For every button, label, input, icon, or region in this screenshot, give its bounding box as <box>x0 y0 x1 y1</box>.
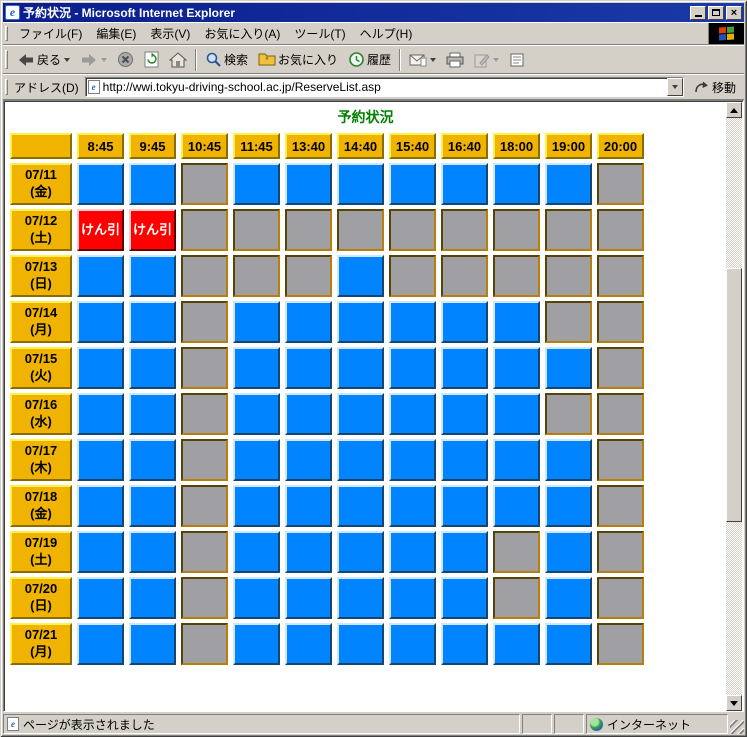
favorites-label: お気に入り <box>278 51 338 68</box>
slot-cell-available[interactable] <box>77 255 124 297</box>
toolbar: 戻る 検索 * お気に入り 履歴 <box>3 45 744 74</box>
table-row: 07/21(月) <box>10 623 644 665</box>
slot-cell-available[interactable] <box>129 577 176 619</box>
slot-cell-available[interactable] <box>77 577 124 619</box>
slot-cell-available[interactable] <box>441 485 488 527</box>
slot-cell-unavailable <box>597 163 644 205</box>
menu-item[interactable]: お気に入り(A) <box>197 23 287 44</box>
slot-cell-available[interactable] <box>233 439 280 481</box>
page-title: 予約状況 <box>5 107 726 127</box>
status-panel-empty <box>522 714 552 734</box>
minimize-icon <box>695 15 702 17</box>
table-row: 07/18(金) <box>10 485 644 527</box>
table-row: 07/13(日) <box>10 255 644 297</box>
slot-cell-available[interactable] <box>389 163 436 205</box>
slot-cell-available[interactable] <box>493 347 540 389</box>
forward-dropdown-icon[interactable] <box>101 58 107 62</box>
slot-cell-available[interactable] <box>337 163 384 205</box>
mail-button[interactable] <box>404 47 441 72</box>
address-label: アドレス(D) <box>12 79 85 96</box>
slot-cell-available[interactable] <box>441 531 488 573</box>
slot-cell-unavailable <box>597 623 644 665</box>
slot-cell-available[interactable] <box>77 393 124 435</box>
resize-grip[interactable] <box>730 720 744 734</box>
home-icon <box>169 52 187 68</box>
chevron-down-icon <box>672 85 678 89</box>
throbber <box>708 23 744 44</box>
refresh-icon <box>144 51 159 68</box>
menu-gripper[interactable] <box>5 26 8 41</box>
forward-arrow-icon <box>80 52 98 68</box>
scroll-down-icon <box>730 701 738 706</box>
slot-cell-available[interactable] <box>233 393 280 435</box>
slot-cell-unavailable <box>181 531 228 573</box>
ie-page-icon: e <box>88 80 100 94</box>
slot-cell-available[interactable] <box>233 301 280 343</box>
slot-cell-unavailable <box>389 255 436 297</box>
slot-cell-unavailable <box>181 439 228 481</box>
history-label: 履歴 <box>367 51 391 68</box>
slot-cell-unavailable <box>493 209 540 251</box>
slot-cell-available[interactable] <box>233 577 280 619</box>
table-corner-cell <box>10 133 72 159</box>
slot-cell-available[interactable] <box>545 439 592 481</box>
address-gripper[interactable] <box>5 79 8 96</box>
slot-cell-available[interactable] <box>129 439 176 481</box>
favorites-button[interactable]: * お気に入り <box>253 47 343 72</box>
slot-cell-available[interactable] <box>129 301 176 343</box>
table-row: 07/11(金) <box>10 163 644 205</box>
slot-cell-available[interactable] <box>441 577 488 619</box>
slot-cell-unavailable <box>545 301 592 343</box>
svg-text:*: * <box>265 55 269 65</box>
ie-logo-icon: e <box>5 5 20 20</box>
time-header-cell: 10:45 <box>181 133 228 159</box>
slot-cell-available[interactable] <box>493 623 540 665</box>
slot-cell-available[interactable] <box>389 485 436 527</box>
slot-cell-available[interactable] <box>129 485 176 527</box>
date-cell: 07/19(土) <box>10 531 72 573</box>
date-cell: 07/16(水) <box>10 393 72 435</box>
menu-item[interactable]: ツール(T) <box>287 23 352 44</box>
slot-cell-available[interactable] <box>545 577 592 619</box>
slot-cell-available[interactable] <box>545 531 592 573</box>
slot-cell-available[interactable] <box>285 347 332 389</box>
slot-cell-available[interactable] <box>337 393 384 435</box>
slot-cell-available[interactable] <box>337 301 384 343</box>
mail-dropdown-icon[interactable] <box>430 58 436 62</box>
scroll-up-button[interactable] <box>726 102 742 118</box>
date-cell: 07/14(月) <box>10 301 72 343</box>
slot-cell-available[interactable] <box>77 347 124 389</box>
date-cell: 07/13(日) <box>10 255 72 297</box>
slot-cell-available[interactable] <box>441 439 488 481</box>
slot-cell-available[interactable] <box>389 531 436 573</box>
slot-cell-available[interactable] <box>233 485 280 527</box>
go-button[interactable]: 移動 <box>688 75 742 99</box>
slot-cell-available[interactable] <box>129 163 176 205</box>
time-header-cell: 15:40 <box>389 133 436 159</box>
maximize-icon <box>712 9 720 16</box>
slot-cell-unavailable <box>181 485 228 527</box>
slot-cell-available[interactable] <box>129 531 176 573</box>
slot-cell-available[interactable] <box>441 347 488 389</box>
slot-cell-available[interactable] <box>77 439 124 481</box>
status-message: ページが表示されました <box>23 716 155 733</box>
slot-cell-available[interactable] <box>493 439 540 481</box>
back-arrow-icon <box>17 52 35 68</box>
minimize-button[interactable] <box>690 6 706 20</box>
slot-cell-towing[interactable]: けん引 <box>129 209 176 251</box>
slot-cell-available[interactable] <box>129 347 176 389</box>
edit-button[interactable] <box>469 47 504 72</box>
slot-cell-available[interactable] <box>389 577 436 619</box>
search-button[interactable]: 検索 <box>200 47 253 72</box>
slot-cell-unavailable <box>597 439 644 481</box>
time-header-cell: 13:40 <box>285 133 332 159</box>
back-button[interactable]: 戻る <box>12 47 75 72</box>
windows-flag-icon <box>719 26 734 40</box>
slot-cell-unavailable <box>389 209 436 251</box>
menu-item[interactable]: ヘルプ(H) <box>353 23 420 44</box>
menu-items-container: ファイル(F)編集(E)表示(V)お気に入り(A)ツール(T)ヘルプ(H) <box>12 23 419 44</box>
slot-cell-available[interactable] <box>77 301 124 343</box>
menu-item[interactable]: 編集(E) <box>89 23 143 44</box>
date-cell: 07/11(金) <box>10 163 72 205</box>
print-button[interactable] <box>441 47 469 72</box>
discuss-icon <box>509 52 525 68</box>
date-cell: 07/20(日) <box>10 577 72 619</box>
slot-cell-unavailable <box>597 577 644 619</box>
home-button[interactable] <box>164 47 192 72</box>
slot-cell-available[interactable] <box>233 347 280 389</box>
slot-cell-available[interactable] <box>337 623 384 665</box>
slot-cell-unavailable <box>285 209 332 251</box>
slot-cell-unavailable <box>285 255 332 297</box>
slot-cell-available[interactable] <box>545 485 592 527</box>
slot-cell-unavailable <box>181 347 228 389</box>
slot-cell-unavailable <box>181 255 228 297</box>
toolbar-separator <box>399 49 401 71</box>
search-label: 検索 <box>224 51 248 68</box>
table-row: 07/19(土) <box>10 531 644 573</box>
slot-cell-available[interactable] <box>337 439 384 481</box>
print-icon <box>446 52 464 68</box>
mail-icon <box>409 53 427 67</box>
slot-cell-available[interactable] <box>493 485 540 527</box>
status-page-icon: e <box>7 717 19 731</box>
slot-cell-unavailable <box>233 209 280 251</box>
table-row: 07/17(木) <box>10 439 644 481</box>
time-header-cell: 8:45 <box>77 133 124 159</box>
slot-cell-unavailable <box>545 209 592 251</box>
slot-cell-available[interactable] <box>389 439 436 481</box>
slot-cell-unavailable <box>181 163 228 205</box>
slot-cell-unavailable <box>441 209 488 251</box>
status-message-panel: e ページが表示されました <box>3 714 520 734</box>
close-button[interactable]: × <box>726 6 742 20</box>
table-row: 07/15(火) <box>10 347 644 389</box>
slot-cell-available[interactable] <box>545 347 592 389</box>
slot-cell-unavailable <box>597 209 644 251</box>
slot-cell-unavailable <box>545 393 592 435</box>
slot-cell-available[interactable] <box>545 623 592 665</box>
slot-cell-unavailable <box>181 577 228 619</box>
favorites-icon: * <box>258 52 276 67</box>
date-cell: 07/21(月) <box>10 623 72 665</box>
slot-cell-unavailable <box>493 531 540 573</box>
slot-cell-available[interactable] <box>77 531 124 573</box>
slot-cell-unavailable <box>597 393 644 435</box>
slot-cell-available[interactable] <box>129 393 176 435</box>
slot-cell-unavailable <box>181 393 228 435</box>
vertical-scrollbar[interactable] <box>726 102 742 711</box>
slot-cell-available[interactable] <box>493 163 540 205</box>
address-bar: アドレス(D) e http://wwi.tokyu-driving-schoo… <box>3 74 744 100</box>
menu-item[interactable]: 表示(V) <box>143 23 197 44</box>
search-icon <box>205 51 222 68</box>
slot-cell-available[interactable] <box>337 347 384 389</box>
slot-cell-available[interactable] <box>441 301 488 343</box>
toolbar-gripper[interactable] <box>5 50 8 69</box>
slot-cell-unavailable <box>233 255 280 297</box>
slot-cell-unavailable <box>545 255 592 297</box>
page-content: 予約状況 8:459:4510:4511:4513:4014:4015:4016… <box>5 102 726 711</box>
slot-cell-available[interactable] <box>233 163 280 205</box>
slot-cell-available[interactable] <box>337 577 384 619</box>
slot-cell-available[interactable] <box>441 163 488 205</box>
slot-cell-available[interactable] <box>77 163 124 205</box>
slot-cell-available[interactable] <box>285 485 332 527</box>
browser-window: e 予約状況 - Microsoft Internet Explorer × フ… <box>0 0 747 737</box>
slot-cell-unavailable <box>441 255 488 297</box>
menu-bar: ファイル(F)編集(E)表示(V)お気に入り(A)ツール(T)ヘルプ(H) <box>3 22 744 45</box>
title-bar: e 予約状況 - Microsoft Internet Explorer × <box>3 3 744 22</box>
slot-cell-available[interactable] <box>233 531 280 573</box>
date-cell: 07/18(金) <box>10 485 72 527</box>
slot-cell-available[interactable] <box>77 623 124 665</box>
address-input[interactable]: e http://wwi.tokyu-driving-school.ac.jp/… <box>85 77 684 97</box>
table-row: 07/14(月) <box>10 301 644 343</box>
slot-cell-available[interactable] <box>337 531 384 573</box>
slot-cell-unavailable <box>597 255 644 297</box>
back-dropdown-icon[interactable] <box>64 58 70 62</box>
discuss-button[interactable] <box>504 47 530 72</box>
slot-cell-available[interactable] <box>129 255 176 297</box>
go-arrow-icon <box>694 80 709 94</box>
slot-cell-towing[interactable]: けん引 <box>77 209 124 251</box>
forward-button[interactable] <box>75 47 112 72</box>
browser-viewport: 予約状況 8:459:4510:4511:4513:4014:4015:4016… <box>3 100 744 712</box>
back-label: 戻る <box>37 51 61 68</box>
window-title: 予約状況 - Microsoft Internet Explorer <box>23 4 688 21</box>
edit-icon <box>474 52 490 68</box>
go-label: 移動 <box>712 79 736 96</box>
stop-icon <box>117 51 134 68</box>
slot-cell-unavailable <box>493 577 540 619</box>
slot-cell-available[interactable] <box>285 531 332 573</box>
slot-cell-available[interactable] <box>493 393 540 435</box>
slot-cell-available[interactable] <box>285 623 332 665</box>
status-bar: e ページが表示されました インターネット <box>3 712 744 734</box>
slot-cell-available[interactable] <box>337 485 384 527</box>
date-cell: 07/17(木) <box>10 439 72 481</box>
address-url: http://wwi.tokyu-driving-school.ac.jp/Re… <box>100 80 667 94</box>
time-header-cell: 19:00 <box>545 133 592 159</box>
slot-cell-unavailable <box>597 485 644 527</box>
slot-cell-available[interactable] <box>545 163 592 205</box>
slot-cell-available[interactable] <box>337 255 384 297</box>
slot-cell-unavailable <box>181 623 228 665</box>
slot-cell-available[interactable] <box>285 577 332 619</box>
slot-cell-available[interactable] <box>441 393 488 435</box>
slot-cell-available[interactable] <box>233 623 280 665</box>
menu-item[interactable]: ファイル(F) <box>12 23 89 44</box>
time-header-cell: 16:40 <box>441 133 488 159</box>
slot-cell-unavailable <box>597 531 644 573</box>
slot-cell-available[interactable] <box>493 301 540 343</box>
toolbar-separator <box>195 49 197 71</box>
scrollbar-thumb[interactable] <box>726 268 742 522</box>
slot-cell-available[interactable] <box>285 393 332 435</box>
time-header-cell: 20:00 <box>597 133 644 159</box>
slot-cell-available[interactable] <box>285 439 332 481</box>
time-header-cell: 14:40 <box>337 133 384 159</box>
slot-cell-unavailable <box>337 209 384 251</box>
scroll-up-icon <box>730 108 738 113</box>
history-button[interactable]: 履歴 <box>343 47 396 72</box>
slot-cell-unavailable <box>181 301 228 343</box>
history-icon <box>348 51 365 68</box>
slot-cell-available[interactable] <box>77 485 124 527</box>
slot-cell-unavailable <box>181 209 228 251</box>
table-row: 07/16(水) <box>10 393 644 435</box>
slot-cell-unavailable <box>597 301 644 343</box>
slot-cell-unavailable <box>493 255 540 297</box>
table-row: 07/20(日) <box>10 577 644 619</box>
slot-cell-available[interactable] <box>389 623 436 665</box>
internet-globe-icon <box>590 718 603 731</box>
maximize-button[interactable] <box>708 6 724 20</box>
time-header-cell: 18:00 <box>493 133 540 159</box>
zone-label: インターネット <box>607 716 691 733</box>
security-zone-panel: インターネット <box>586 714 728 734</box>
slot-cell-available[interactable] <box>129 623 176 665</box>
slot-cell-available[interactable] <box>441 623 488 665</box>
slot-cell-available[interactable] <box>285 301 332 343</box>
reservation-table: 8:459:4510:4511:4513:4014:4015:4016:4018… <box>5 129 649 669</box>
time-header-cell: 9:45 <box>129 133 176 159</box>
table-row: 07/12(土)けん引けん引 <box>10 209 644 251</box>
slot-cell-available[interactable] <box>389 393 436 435</box>
refresh-button[interactable] <box>139 47 164 72</box>
scroll-down-button[interactable] <box>726 695 742 711</box>
time-header-cell: 11:45 <box>233 133 280 159</box>
slot-cell-unavailable <box>597 347 644 389</box>
stop-button[interactable] <box>112 47 139 72</box>
close-icon: × <box>731 8 737 18</box>
edit-dropdown-icon[interactable] <box>493 58 499 62</box>
date-cell: 07/15(火) <box>10 347 72 389</box>
status-panel-empty <box>554 714 584 734</box>
slot-cell-available[interactable] <box>389 301 436 343</box>
address-dropdown-button[interactable] <box>667 78 683 96</box>
date-cell: 07/12(土) <box>10 209 72 251</box>
slot-cell-available[interactable] <box>285 163 332 205</box>
slot-cell-available[interactable] <box>389 347 436 389</box>
